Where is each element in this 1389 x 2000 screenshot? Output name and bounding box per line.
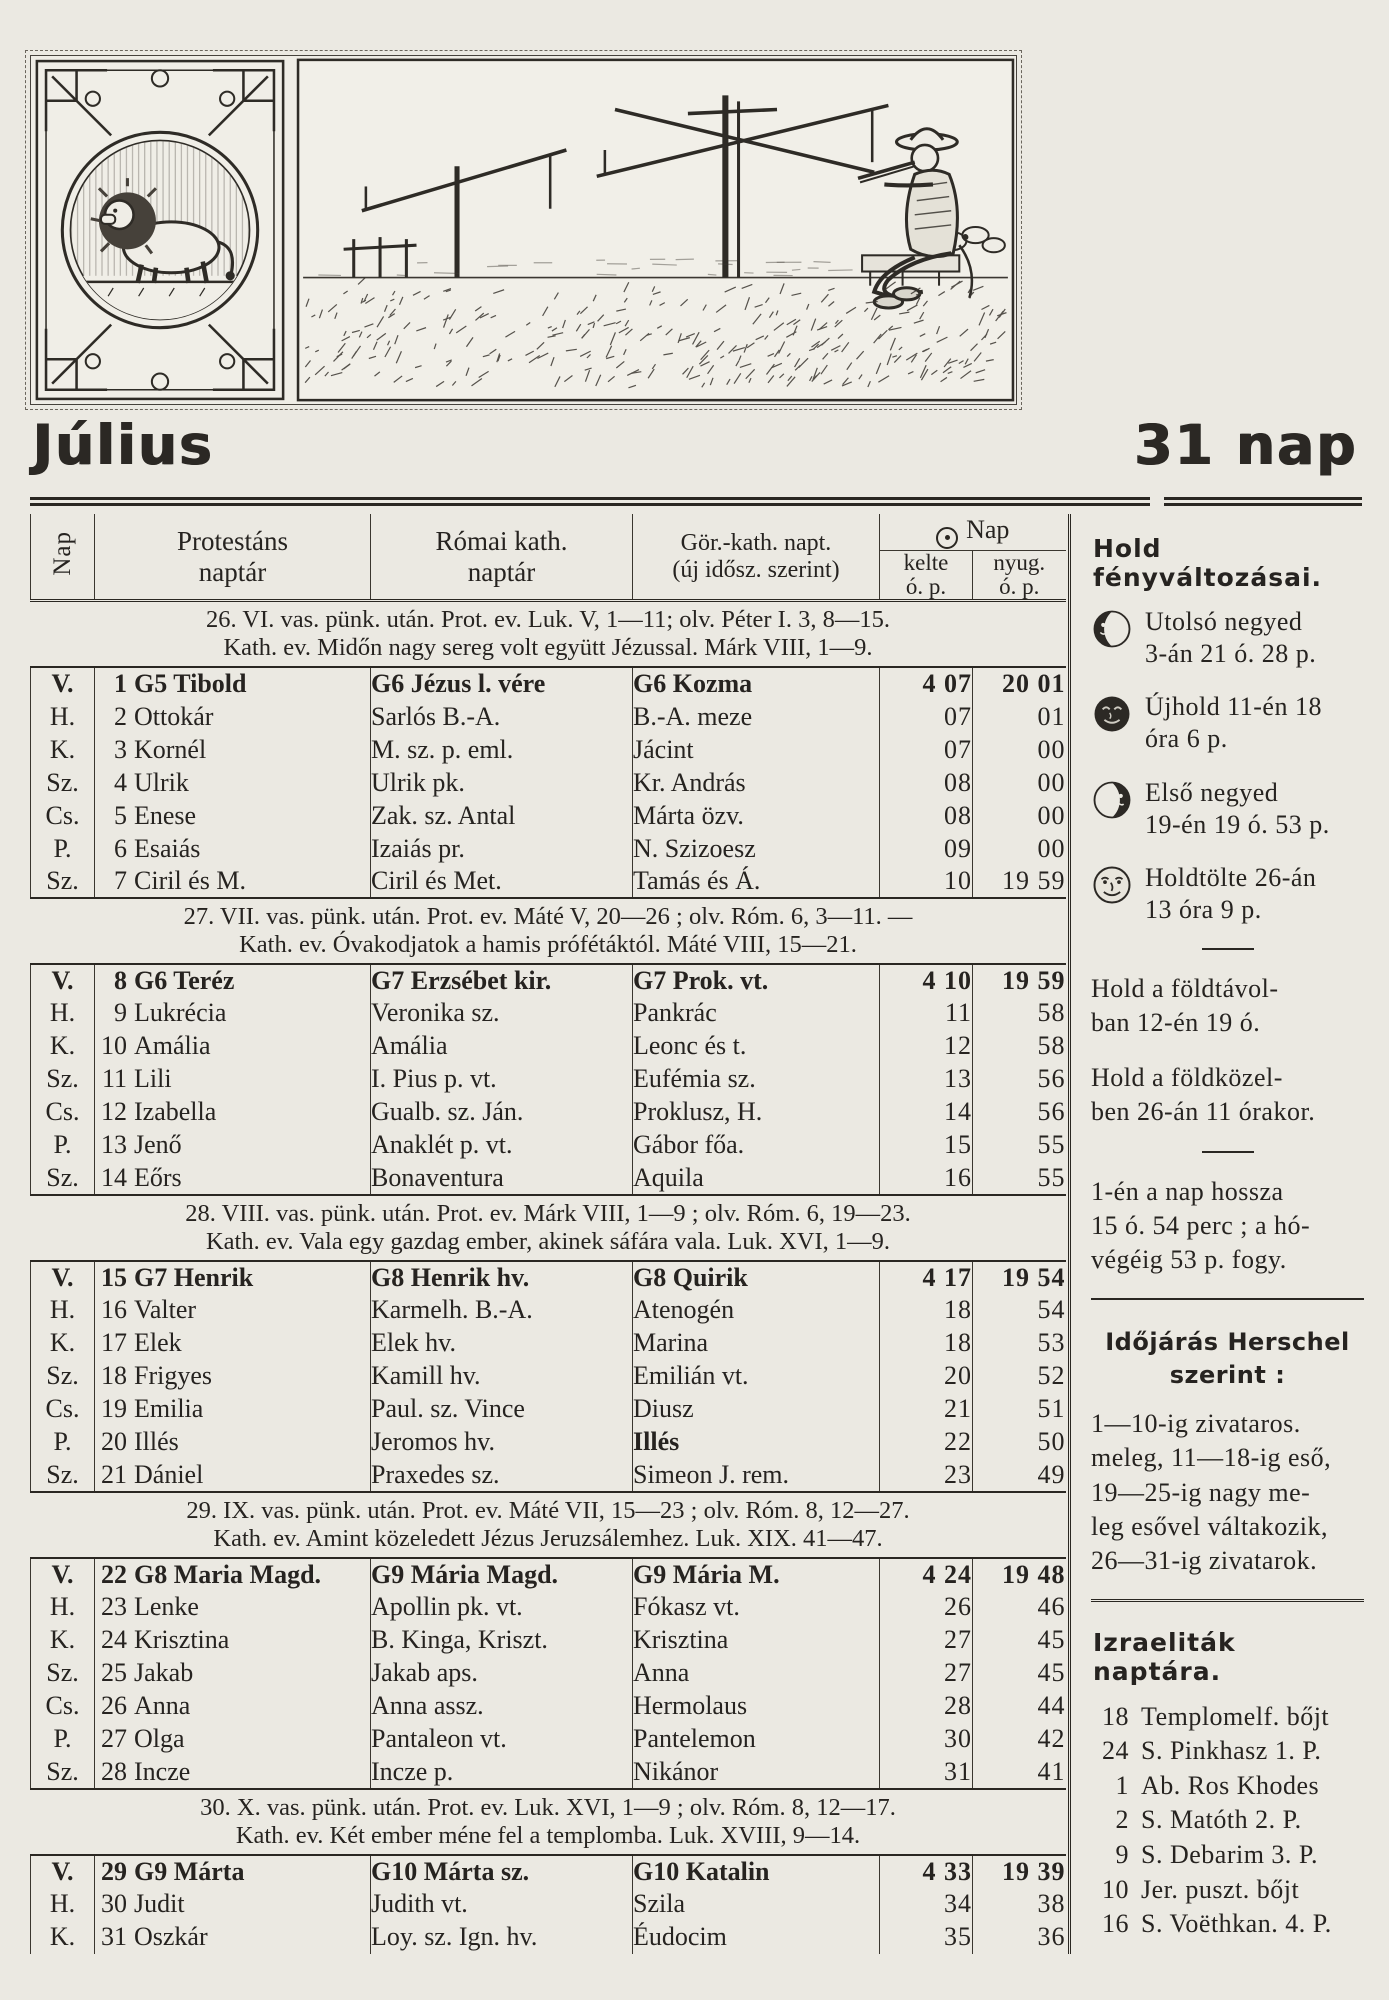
greek-cell: G6 Kozma [633, 667, 880, 700]
dow-cell: H. [31, 1294, 95, 1327]
sunset-cell: 58 [973, 1030, 1066, 1063]
calendar-table: Nap Protestáns naptár Római kath. naptár… [30, 514, 1066, 1954]
day-row: Cs.5EneseZak. sz. AntalMárta özv.0800 [31, 799, 1066, 832]
dow-cell: Sz. [31, 1162, 95, 1195]
sunset-cell: 01 [973, 700, 1066, 733]
dow-cell: P. [31, 1426, 95, 1459]
separator-dash [1202, 1151, 1254, 1153]
protestant-cell: 15G7 Henrik [95, 1261, 371, 1294]
moon-phase-entry: Újhold 11-én 18 óra 6 p. [1091, 691, 1364, 754]
roman-cell: Pantaleon vt. [371, 1723, 633, 1756]
israelite-calendar-item: 24S. Pinkhasz 1. P. [1091, 1734, 1364, 1769]
israelite-item-day: 16 [1091, 1907, 1129, 1942]
day-row: P.20IllésJeromos hv.Illés2250 [31, 1426, 1066, 1459]
sunrise-cell: 4 10 [880, 964, 973, 997]
protestant-cell: 10Amália [95, 1030, 371, 1063]
dow-cell: K. [31, 1327, 95, 1360]
roman-cell: Incze p. [371, 1756, 633, 1789]
israelite-item-day: 10 [1091, 1873, 1129, 1908]
dow-cell: P. [31, 1723, 95, 1756]
sunrise-cell: 15 [880, 1129, 973, 1162]
roman-cell: Paul. sz. Vince [371, 1393, 633, 1426]
protestant-cell: 29G9 Márta [95, 1855, 371, 1888]
greek-cell: Márta özv. [633, 799, 880, 832]
header-illustration-banner [30, 55, 1017, 405]
greek-cell: B.-A. meze [633, 700, 880, 733]
day-row: H.9LukréciaVeronika sz.Pankrác1158 [31, 997, 1066, 1030]
dow-cell: Sz. [31, 766, 95, 799]
israelite-item-day: 1 [1091, 1769, 1129, 1804]
calendar-table-wrap: Nap Protestáns naptár Római kath. naptár… [30, 514, 1071, 1954]
roman-cell: B. Kinga, Kriszt. [371, 1624, 633, 1657]
col-header-sunrise: kelteó. p. [880, 551, 973, 601]
israelite-item-day: 9 [1091, 1838, 1129, 1873]
day-row: Sz.28InczeIncze p.Nikánor3141 [31, 1756, 1066, 1789]
greek-cell: G8 Quirik [633, 1261, 880, 1294]
weather-heading: Időjárás Herschel szerint : [1091, 1326, 1364, 1391]
day-row: Sz.7Ciril és M.Ciril és Met.Tamás és Á.1… [31, 865, 1066, 898]
dow-cell: Sz. [31, 865, 95, 898]
moon-phase-text: Első negyed 19-én 19 ó. 53 p. [1145, 777, 1330, 840]
week-header-row: 29. IX. vas. pünk. után. Prot. ev. Máté … [31, 1492, 1066, 1558]
sunrise-cell: 4 33 [880, 1855, 973, 1888]
week-gospel-line-2: Kath. ev. Amint közeledett Jézus Jeruzsá… [33, 1525, 1064, 1553]
day-row: K.24KrisztinaB. Kinga, Kriszt.Krisztina2… [31, 1624, 1066, 1657]
greek-cell: Nikánor [633, 1756, 880, 1789]
sunrise-cell: 21 [880, 1393, 973, 1426]
moon-phase-text: Újhold 11-én 18 óra 6 p. [1145, 691, 1322, 754]
sunrise-cell: 31 [880, 1756, 973, 1789]
day-row: Sz.21DánielPraxedes sz.Simeon J. rem.234… [31, 1459, 1066, 1492]
calendar-table-head: Nap Protestáns naptár Római kath. naptár… [31, 514, 1066, 601]
week-header-row: 28. VIII. vas. pünk. után. Prot. ev. Már… [31, 1195, 1066, 1261]
week-gospel-line-2: Kath. ev. Óvakodjatok a hamis prófétáktó… [33, 931, 1064, 959]
roman-cell: Zak. sz. Antal [371, 799, 633, 832]
israelite-heading: Izraeliták naptára. [1093, 1628, 1364, 1686]
week-gospel-line-1: 30. X. vas. pünk. után. Prot. ev. Luk. X… [33, 1794, 1064, 1822]
greek-cell: Hermolaus [633, 1690, 880, 1723]
israelite-calendar-item: 18Templomelf. bőjt [1091, 1700, 1364, 1735]
sunrise-cell: 4 24 [880, 1558, 973, 1591]
protestant-cell: 20Illés [95, 1426, 371, 1459]
greek-cell: Atenogén [633, 1294, 880, 1327]
greek-cell: Aquila [633, 1162, 880, 1195]
roman-cell: Amália [371, 1030, 633, 1063]
roman-cell: G9 Mária Magd. [371, 1558, 633, 1591]
week-gospel-line-1: 27. VII. vas. pünk. után. Prot. ev. Máté… [33, 903, 1064, 931]
col-header-sunset: nyug.ó. p. [973, 551, 1066, 601]
sunset-cell: 51 [973, 1393, 1066, 1426]
day-row: Sz.18FrigyesKamill hv.Emilián vt.2052 [31, 1360, 1066, 1393]
rural-scene-illustration [295, 56, 1016, 404]
dow-cell: V. [31, 1558, 95, 1591]
day-row: K.17ElekElek hv.Marina1853 [31, 1327, 1066, 1360]
protestant-cell: 23Lenke [95, 1591, 371, 1624]
greek-cell: Emilián vt. [633, 1360, 880, 1393]
full-moon-icon [1091, 864, 1133, 906]
dow-cell: V. [31, 964, 95, 997]
greek-cell: Marina [633, 1327, 880, 1360]
protestant-cell: 11Lili [95, 1063, 371, 1096]
day-row: Cs.12IzabellaGualb. sz. Ján.Proklusz, H.… [31, 1096, 1066, 1129]
sunset-cell: 42 [973, 1723, 1066, 1756]
day-row: H.30JuditJudith vt.Szila3438 [31, 1888, 1066, 1921]
greek-cell: Pantelemon [633, 1723, 880, 1756]
protestant-cell: 3Kornél [95, 733, 371, 766]
greek-cell: Fókasz vt. [633, 1591, 880, 1624]
sunrise-cell: 11 [880, 997, 973, 1030]
protestant-cell: 16Valter [95, 1294, 371, 1327]
roman-cell: Veronika sz. [371, 997, 633, 1030]
calendar-page: { "page": { "title": "Július", "day_coun… [0, 0, 1389, 2000]
moon-phase-entry: Holdtölte 26-án 13 óra 9 p. [1091, 862, 1364, 925]
sunset-cell: 36 [973, 1921, 1066, 1954]
sunset-cell: 46 [973, 1591, 1066, 1624]
greek-cell: Illés [633, 1426, 880, 1459]
dow-cell: K. [31, 1921, 95, 1954]
day-row: P.13JenőAnaklét p. vt.Gábor főa.1555 [31, 1129, 1066, 1162]
first-quarter-moon-icon [1091, 779, 1133, 821]
day-row: P.27OlgaPantaleon vt.Pantelemon3042 [31, 1723, 1066, 1756]
israelite-calendar-item: 10Jer. puszt. bőjt [1091, 1873, 1364, 1908]
sunset-cell: 44 [973, 1690, 1066, 1723]
day-row: H.16ValterKarmelh. B.-A.Atenogén1854 [31, 1294, 1066, 1327]
dow-cell: V. [31, 667, 95, 700]
protestant-cell: 22G8 Maria Magd. [95, 1558, 371, 1591]
sunset-cell: 00 [973, 766, 1066, 799]
day-row: V.8G6 TerézG7 Erzsébet kir.G7 Prok. vt.4… [31, 964, 1066, 997]
protestant-cell: 19Emilia [95, 1393, 371, 1426]
sunset-cell: 38 [973, 1888, 1066, 1921]
protestant-cell: 7Ciril és M. [95, 865, 371, 898]
sunrise-cell: 28 [880, 1690, 973, 1723]
israelite-item-label: S. Pinkhasz 1. P. [1141, 1734, 1321, 1769]
rural-scene-icon [295, 56, 1016, 404]
protestant-cell: 2Ottokár [95, 700, 371, 733]
day-row: Sz.14EőrsBonaventuraAquila1655 [31, 1162, 1066, 1195]
dow-cell: H. [31, 1591, 95, 1624]
day-row: V.15G7 HenrikG8 Henrik hv.G8 Quirik4 171… [31, 1261, 1066, 1294]
sunrise-cell: 30 [880, 1723, 973, 1756]
week-header-row: 30. X. vas. pünk. után. Prot. ev. Luk. X… [31, 1789, 1066, 1855]
dow-cell: Sz. [31, 1657, 95, 1690]
separator-dash [1202, 948, 1254, 950]
leo-zodiac-illustration [31, 56, 289, 404]
israelite-item-label: Jer. puszt. bőjt [1141, 1873, 1299, 1908]
sunrise-cell: 08 [880, 799, 973, 832]
sunset-cell: 19 59 [973, 865, 1066, 898]
day-row: Cs.19EmiliaPaul. sz. VinceDiusz2151 [31, 1393, 1066, 1426]
greek-cell: Eufémia sz. [633, 1063, 880, 1096]
roman-cell: Anna assz. [371, 1690, 633, 1723]
roman-cell: Sarlós B.-A. [371, 700, 633, 733]
sunset-cell: 54 [973, 1294, 1066, 1327]
roman-cell: Izaiás pr. [371, 832, 633, 865]
roman-cell: Judith vt. [371, 1888, 633, 1921]
sunset-cell: 50 [973, 1426, 1066, 1459]
roman-cell: G7 Erzsébet kir. [371, 964, 633, 997]
dow-cell: Cs. [31, 1690, 95, 1723]
sunrise-cell: 10 [880, 865, 973, 898]
greek-cell: Jácint [633, 733, 880, 766]
protestant-cell: 26Anna [95, 1690, 371, 1723]
roman-cell: Ulrik pk. [371, 766, 633, 799]
roman-cell: Jakab aps. [371, 1657, 633, 1690]
sunset-cell: 45 [973, 1657, 1066, 1690]
col-header-sun: Nap [880, 514, 1066, 551]
greek-cell: Kr. András [633, 766, 880, 799]
protestant-cell: 6Esaiás [95, 832, 371, 865]
roman-cell: I. Pius p. vt. [371, 1063, 633, 1096]
dow-cell: H. [31, 1888, 95, 1921]
last-quarter-moon-icon [1091, 608, 1133, 650]
week-gospel-line-2: Kath. ev. Két ember méne fel a templomba… [33, 1822, 1064, 1850]
protestant-cell: 8G6 Teréz [95, 964, 371, 997]
sunset-cell: 53 [973, 1327, 1066, 1360]
protestant-cell: 27Olga [95, 1723, 371, 1756]
israelite-list: 18Templomelf. bőjt24S. Pinkhasz 1. P.1Ab… [1091, 1700, 1364, 1942]
sunset-cell: 55 [973, 1162, 1066, 1195]
day-row: Sz.11LiliI. Pius p. vt.Eufémia sz.1356 [31, 1063, 1066, 1096]
week-gospel-line-1: 26. VI. vas. pünk. után. Prot. ev. Luk. … [33, 606, 1064, 634]
sunrise-cell: 34 [880, 1888, 973, 1921]
dow-cell: Sz. [31, 1360, 95, 1393]
roman-cell: Gualb. sz. Ján. [371, 1096, 633, 1129]
day-row: V.22G8 Maria Magd.G9 Mária Magd.G9 Mária… [31, 1558, 1066, 1591]
dow-cell: Sz. [31, 1756, 95, 1789]
israelite-calendar-item: 16S. Voëthkan. 4. P. [1091, 1907, 1364, 1942]
protestant-cell: 21Dániel [95, 1459, 371, 1492]
greek-cell: Éudocim [633, 1921, 880, 1954]
sidebar: Hold fényváltozásai. Utolsó negyed 3-án … [1071, 514, 1364, 1954]
sunrise-cell: 16 [880, 1162, 973, 1195]
greek-cell: G10 Katalin [633, 1855, 880, 1888]
leo-zodiac-icon [31, 56, 289, 404]
col-header-greek: Gör.-kath. napt. (új idősz. szerint) [633, 514, 880, 601]
new-moon-icon [1091, 693, 1133, 735]
israelite-item-label: S. Matóth 2. P. [1141, 1803, 1302, 1838]
sunset-cell: 19 39 [973, 1855, 1066, 1888]
roman-cell: Bonaventura [371, 1162, 633, 1195]
col-header-protestant: Protestáns naptár [95, 514, 371, 601]
moon-phase-entry: Utolsó negyed 3-án 21 ó. 28 p. [1091, 606, 1364, 669]
greek-cell: Simeon J. rem. [633, 1459, 880, 1492]
sunset-cell: 45 [973, 1624, 1066, 1657]
sunrise-cell: 26 [880, 1591, 973, 1624]
sunset-cell: 19 59 [973, 964, 1066, 997]
sunrise-cell: 4 07 [880, 667, 973, 700]
greek-cell: G9 Mária M. [633, 1558, 880, 1591]
greek-cell: Diusz [633, 1393, 880, 1426]
greek-cell: Pankrác [633, 997, 880, 1030]
day-row: K.10AmáliaAmáliaLeonc és t.1258 [31, 1030, 1066, 1063]
moon-perigee-note: Hold a földközel- ben 26-án 11 órakor. [1091, 1061, 1364, 1129]
sunrise-cell: 08 [880, 766, 973, 799]
sunset-cell: 00 [973, 832, 1066, 865]
week-gospel-line-2: Kath. ev. Midőn nagy sereg volt együtt J… [33, 634, 1064, 662]
sunrise-cell: 22 [880, 1426, 973, 1459]
sunset-cell: 19 48 [973, 1558, 1066, 1591]
sunrise-cell: 4 17 [880, 1261, 973, 1294]
roman-cell: Jeromos hv. [371, 1426, 633, 1459]
day-row: P.6EsaiásIzaiás pr.N. Szizoesz0900 [31, 832, 1066, 865]
moon-phase-text: Holdtölte 26-án 13 óra 9 p. [1145, 862, 1316, 925]
greek-cell: Proklusz, H. [633, 1096, 880, 1129]
col-header-nap: Nap [31, 514, 95, 601]
greek-cell: Leonc és t. [633, 1030, 880, 1063]
greek-cell: Anna [633, 1657, 880, 1690]
roman-cell: M. sz. p. eml. [371, 733, 633, 766]
moon-phase-entry: Első negyed 19-én 19 ó. 53 p. [1091, 777, 1364, 840]
roman-cell: G8 Henrik hv. [371, 1261, 633, 1294]
protestant-cell: 25Jakab [95, 1657, 371, 1690]
roman-cell: Apollin pk. vt. [371, 1591, 633, 1624]
sunset-cell: 52 [973, 1360, 1066, 1393]
day-row: V.1G5 TiboldG6 Jézus l. véreG6 Kozma4 07… [31, 667, 1066, 700]
sunrise-cell: 20 [880, 1360, 973, 1393]
dow-cell: P. [31, 1129, 95, 1162]
israelite-item-label: S. Debarim 3. P. [1141, 1838, 1318, 1873]
protestant-cell: 14Eőrs [95, 1162, 371, 1195]
moon-apogee-note: Hold a földtávol- ban 12-én 19 ó. [1091, 972, 1364, 1040]
israelite-calendar-item: 1Ab. Ros Khodes [1091, 1769, 1364, 1804]
sunrise-cell: 14 [880, 1096, 973, 1129]
week-header-row: 27. VII. vas. pünk. után. Prot. ev. Máté… [31, 898, 1066, 964]
col-header-roman: Római kath. naptár [371, 514, 633, 601]
sunrise-cell: 35 [880, 1921, 973, 1954]
protestant-cell: 17Elek [95, 1327, 371, 1360]
roman-cell: Ciril és Met. [371, 865, 633, 898]
dow-cell: K. [31, 1624, 95, 1657]
day-row: Cs.26AnnaAnna assz.Hermolaus2844 [31, 1690, 1066, 1723]
dow-cell: Cs. [31, 799, 95, 832]
dow-cell: Cs. [31, 1393, 95, 1426]
separator-rule [1091, 1298, 1364, 1300]
day-row: Sz.25JakabJakab aps.Anna2745 [31, 1657, 1066, 1690]
roman-cell: G6 Jézus l. vére [371, 667, 633, 700]
sunrise-cell: 09 [880, 832, 973, 865]
roman-cell: Kamill hv. [371, 1360, 633, 1393]
day-row: H.23LenkeApollin pk. vt.Fókasz vt.2646 [31, 1591, 1066, 1624]
week-gospel-line-2: Kath. ev. Vala egy gazdag ember, akinek … [33, 1228, 1064, 1256]
israelite-calendar-item: 2S. Matóth 2. P. [1091, 1803, 1364, 1838]
protestant-cell: 12Izabella [95, 1096, 371, 1129]
dow-cell: H. [31, 700, 95, 733]
dow-cell: V. [31, 1261, 95, 1294]
israelite-calendar-item: 9S. Debarim 3. P. [1091, 1838, 1364, 1873]
day-length-note: 1-én a nap hossza 15 ó. 54 perc ; a hó- … [1091, 1175, 1364, 1276]
israelite-item-day: 24 [1091, 1734, 1129, 1769]
moon-phase-text: Utolsó negyed 3-án 21 ó. 28 p. [1145, 606, 1316, 669]
sunrise-cell: 13 [880, 1063, 973, 1096]
moon-phases-list: Utolsó negyed 3-án 21 ó. 28 p.Újhold 11-… [1091, 606, 1364, 926]
protestant-cell: 28Incze [95, 1756, 371, 1789]
roman-cell: G10 Márta sz. [371, 1855, 633, 1888]
sunset-cell: 00 [973, 733, 1066, 766]
sunrise-cell: 12 [880, 1030, 973, 1063]
sunrise-cell: 27 [880, 1624, 973, 1657]
dow-cell: H. [31, 997, 95, 1030]
week-gospel-line-1: 29. IX. vas. pünk. után. Prot. ev. Máté … [33, 1497, 1064, 1525]
separator-rule-double [1091, 1599, 1364, 1602]
roman-cell: Anaklét p. vt. [371, 1129, 633, 1162]
roman-cell: Karmelh. B.-A. [371, 1294, 633, 1327]
greek-cell: Gábor főa. [633, 1129, 880, 1162]
sun-icon [936, 527, 958, 549]
dow-cell: K. [31, 733, 95, 766]
israelite-item-label: S. Voëthkan. 4. P. [1141, 1907, 1332, 1942]
roman-cell: Loy. sz. Ign. hv. [371, 1921, 633, 1954]
protestant-cell: 18Frigyes [95, 1360, 371, 1393]
dow-cell: P. [31, 832, 95, 865]
greek-cell: G7 Prok. vt. [633, 964, 880, 997]
calendar-body: 26. VI. vas. pünk. után. Prot. ev. Luk. … [31, 601, 1066, 1954]
sunset-cell: 55 [973, 1129, 1066, 1162]
sunrise-cell: 27 [880, 1657, 973, 1690]
dow-cell: Sz. [31, 1063, 95, 1096]
protestant-cell: 4Ulrik [95, 766, 371, 799]
day-row: Sz.4UlrikUlrik pk.Kr. András0800 [31, 766, 1066, 799]
israelite-item-label: Templomelf. bőjt [1141, 1700, 1329, 1735]
dow-cell: V. [31, 1855, 95, 1888]
israelite-item-label: Ab. Ros Khodes [1141, 1769, 1319, 1804]
sunset-cell: 41 [973, 1756, 1066, 1789]
sunrise-cell: 07 [880, 700, 973, 733]
title-rule [30, 497, 1362, 506]
roman-cell: Praxedes sz. [371, 1459, 633, 1492]
protestant-cell: 1G5 Tibold [95, 667, 371, 700]
sunset-cell: 19 54 [973, 1261, 1066, 1294]
dow-cell: K. [31, 1030, 95, 1063]
greek-cell: Krisztina [633, 1624, 880, 1657]
page-title: Július [32, 418, 213, 473]
day-row: K.3KornélM. sz. p. eml.Jácint0700 [31, 733, 1066, 766]
day-row: H.2OttokárSarlós B.-A.B.-A. meze0701 [31, 700, 1066, 733]
moon-phases-heading: Hold fényváltozásai. [1093, 534, 1364, 592]
sunset-cell: 56 [973, 1096, 1066, 1129]
sunset-cell: 58 [973, 997, 1066, 1030]
sunrise-cell: 07 [880, 733, 973, 766]
protestant-cell: 31Oszkár [95, 1921, 371, 1954]
sunset-cell: 20 01 [973, 667, 1066, 700]
greek-cell: Tamás és Á. [633, 865, 880, 898]
sunset-cell: 56 [973, 1063, 1066, 1096]
day-row: K.31OszkárLoy. sz. Ign. hv.Éudocim3536 [31, 1921, 1066, 1954]
greek-cell: Szila [633, 1888, 880, 1921]
day-row: V.29G9 MártaG10 Márta sz.G10 Katalin4 33… [31, 1855, 1066, 1888]
week-header-row: 26. VI. vas. pünk. után. Prot. ev. Luk. … [31, 601, 1066, 667]
sunset-cell: 00 [973, 799, 1066, 832]
protestant-cell: 24Krisztina [95, 1624, 371, 1657]
greek-cell: N. Szizoesz [633, 832, 880, 865]
protestant-cell: 9Lukrécia [95, 997, 371, 1030]
protestant-cell: 13Jenő [95, 1129, 371, 1162]
sunrise-cell: 23 [880, 1459, 973, 1492]
day-count: 31 nap [1134, 418, 1357, 473]
protestant-cell: 30Judit [95, 1888, 371, 1921]
sunrise-cell: 18 [880, 1327, 973, 1360]
protestant-cell: 5Enese [95, 799, 371, 832]
dow-cell: Sz. [31, 1459, 95, 1492]
weather-forecast: 1—10-ig zivataros. meleg, 11—18-ig eső, … [1091, 1407, 1364, 1579]
dow-cell: Cs. [31, 1096, 95, 1129]
israelite-item-day: 2 [1091, 1803, 1129, 1838]
sunset-cell: 49 [973, 1459, 1066, 1492]
sunrise-cell: 18 [880, 1294, 973, 1327]
roman-cell: Elek hv. [371, 1327, 633, 1360]
week-gospel-line-1: 28. VIII. vas. pünk. után. Prot. ev. Már… [33, 1200, 1064, 1228]
israelite-item-day: 18 [1091, 1700, 1129, 1735]
